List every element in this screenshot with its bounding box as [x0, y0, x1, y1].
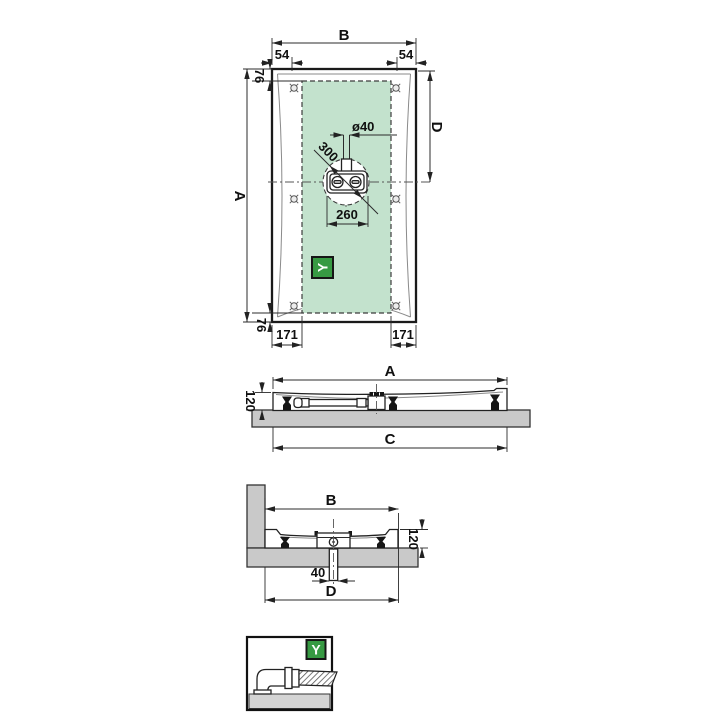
dim-c: C — [273, 427, 507, 452]
drain-outlet-detail: Y — [247, 637, 337, 710]
dim-label-a: A — [231, 191, 248, 202]
side-view: A 120 C — [243, 363, 530, 452]
dim-label-b: B — [339, 27, 350, 44]
dim-a-side: A — [273, 363, 507, 389]
dim-label-d: D — [428, 122, 445, 133]
screw-icon — [290, 195, 298, 203]
dim-label-b-end: B — [326, 492, 337, 509]
screw-icon — [290, 84, 298, 92]
screw-icon — [392, 84, 400, 92]
dim-label-76-bottom: 76 — [254, 318, 269, 332]
wall — [247, 485, 265, 548]
dim-label-260: 260 — [336, 207, 358, 222]
floor-slab — [252, 410, 530, 427]
screw-icon — [290, 302, 298, 310]
y-direction-icon: Y — [311, 642, 321, 658]
drawing-page: Y B 54 54 76 — [0, 0, 720, 720]
dim-a-top: A — [231, 69, 272, 322]
dim-label-120-end: 120 — [406, 528, 421, 550]
horizontal-waste-pipe — [294, 398, 368, 408]
dim-label-171-left: 171 — [276, 327, 298, 342]
detail-floor — [249, 694, 330, 709]
screw-icon — [392, 302, 400, 310]
technical-drawing: Y B 54 54 76 — [0, 0, 720, 720]
end-view: B 120 40 D — [247, 485, 428, 603]
dim-label-d-end: D — [326, 583, 337, 600]
y-direction-icon: Y — [315, 262, 331, 272]
dim-54-left: 54 — [261, 47, 303, 71]
pipe-cut-section — [299, 671, 337, 687]
dim-label-171-right: 171 — [392, 327, 414, 342]
dim-label-54-right: 54 — [399, 47, 414, 62]
dim-label-54-left: 54 — [275, 47, 290, 62]
dim-label-dia40: ø40 — [352, 119, 374, 134]
top-view: Y B 54 54 76 — [231, 27, 445, 348]
dim-label-c: C — [385, 431, 396, 448]
dim-label-76-top: 76 — [252, 69, 267, 83]
dim-54-right: 54 — [386, 47, 427, 71]
screw-icon — [392, 195, 400, 203]
dim-label-a-side: A — [385, 363, 396, 380]
dim-d-top: D — [418, 71, 445, 182]
install-direction-icon: Y — [312, 257, 333, 278]
dim-label-40: 40 — [311, 565, 325, 580]
install-direction-icon-detail: Y — [307, 640, 326, 659]
dim-b-top: B — [272, 27, 416, 65]
dim-label-120-side: 120 — [243, 390, 258, 412]
